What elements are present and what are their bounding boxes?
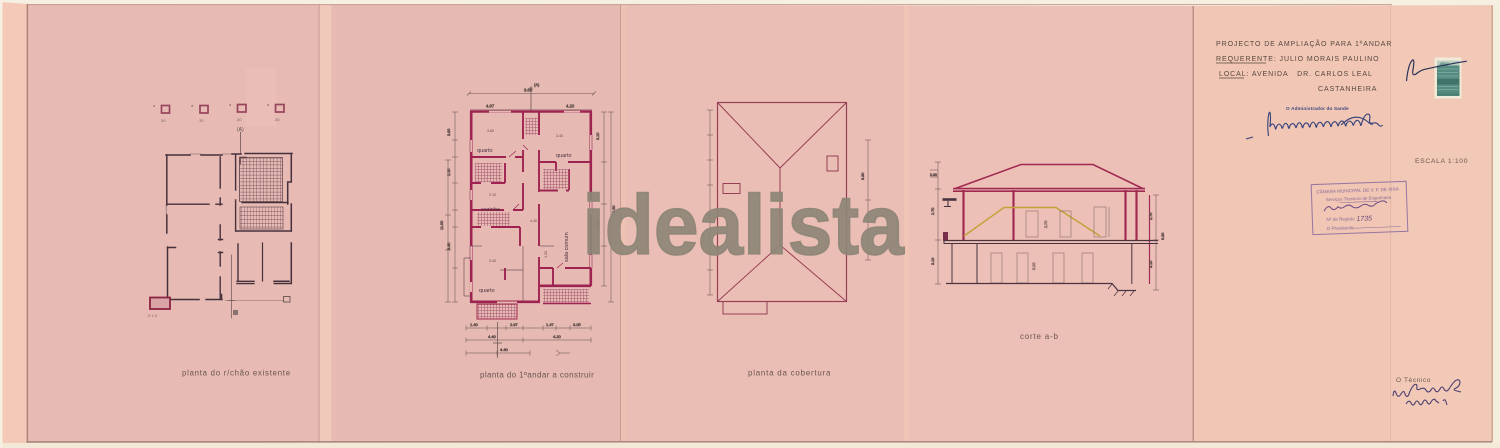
svg-text:4.40: 4.40	[500, 347, 509, 352]
svg-text:.30: .30	[160, 118, 166, 123]
svg-text:REQUERENTE: JULIO MORAIS PAULI: REQUERENTE: JULIO MORAIS PAULINO	[1216, 56, 1380, 63]
svg-text:4.20: 4.20	[553, 334, 562, 339]
svg-text:CASTANHEIRA: CASTANHEIRA	[1318, 86, 1377, 93]
svg-text:2.10: 2.10	[447, 169, 451, 176]
svg-text:O Presidente: O Presidente	[1327, 225, 1354, 231]
svg-text:4.40: 4.40	[488, 334, 497, 339]
svg-text:2.70: 2.70	[931, 208, 935, 215]
svg-text:3.60: 3.60	[487, 129, 494, 133]
svg-text:O Técnico: O Técnico	[1396, 377, 1431, 384]
svg-text:3.40: 3.40	[447, 243, 451, 250]
svg-text:0.30: 0.30	[930, 173, 937, 177]
svg-text:ESCALA 1:100: ESCALA 1:100	[1415, 158, 1468, 165]
svg-text:3.10: 3.10	[596, 133, 600, 140]
svg-text:planta da cobertura: planta da cobertura	[748, 369, 831, 378]
svg-text:O Administrador do Sande: O Administrador do Sande	[1286, 106, 1349, 111]
svg-text:1735: 1735	[1356, 216, 1372, 224]
svg-text:Nº de Registo: Nº de Registo	[1326, 216, 1355, 222]
svg-text:2.70: 2.70	[1044, 221, 1048, 228]
svg-text:3.05: 3.05	[573, 322, 582, 327]
svg-text:3.60: 3.60	[447, 129, 451, 136]
svg-text:planta do 1ºandar a construir: planta do 1ºandar a construir	[480, 371, 594, 380]
svg-text:quarto: quarto	[556, 153, 572, 159]
svg-text:cozinha: cozinha	[481, 207, 501, 213]
svg-text:4.20: 4.20	[566, 104, 575, 109]
svg-text:sala comum: sala comum	[564, 232, 570, 262]
svg-text:6.30: 6.30	[1161, 233, 1165, 240]
svg-text:quarto: quarto	[477, 148, 493, 154]
svg-text:2.70: 2.70	[1149, 213, 1153, 220]
svg-text:corte a-b: corte a-b	[1020, 332, 1059, 341]
svg-text:.30: .30	[198, 118, 204, 123]
svg-text:4.40: 4.40	[530, 219, 537, 223]
svg-text:planta do r/chão existente: planta do r/chão existente	[182, 369, 291, 378]
svg-text:.30: .30	[274, 117, 280, 122]
svg-text:PROJECTO DE AMPLIAÇÃO PARA 1ºA: PROJECTO DE AMPLIAÇÃO PARA 1ºANDAR	[1216, 39, 1392, 48]
svg-text:3.10: 3.10	[931, 258, 935, 265]
svg-text:LOCAL: AVENIDA DR. CARLOS LE: LOCAL: AVENIDA DR. CARLOS LEAL	[1219, 71, 1373, 78]
svg-text:2.10: 2.10	[489, 193, 496, 197]
svg-text:.30: .30	[236, 117, 242, 122]
svg-text:11.00: 11.00	[440, 221, 444, 230]
svg-text:3.10: 3.10	[1032, 263, 1036, 270]
svg-text:idealista: idealista	[583, 179, 906, 272]
svg-text:2.87: 2.87	[510, 322, 519, 327]
svg-text:(A): (A)	[534, 82, 540, 87]
svg-text:.9 1.9: .9 1.9	[147, 313, 158, 318]
svg-text:1.40: 1.40	[470, 322, 479, 327]
svg-text:1.47: 1.47	[546, 322, 555, 327]
svg-text:3.40: 3.40	[489, 259, 496, 263]
svg-text:4.97: 4.97	[486, 104, 495, 109]
svg-text:3.40: 3.40	[556, 134, 563, 138]
svg-text:quarto: quarto	[479, 288, 495, 294]
svg-text:3.10: 3.10	[1149, 261, 1153, 268]
svg-text:4.20: 4.20	[544, 251, 548, 258]
